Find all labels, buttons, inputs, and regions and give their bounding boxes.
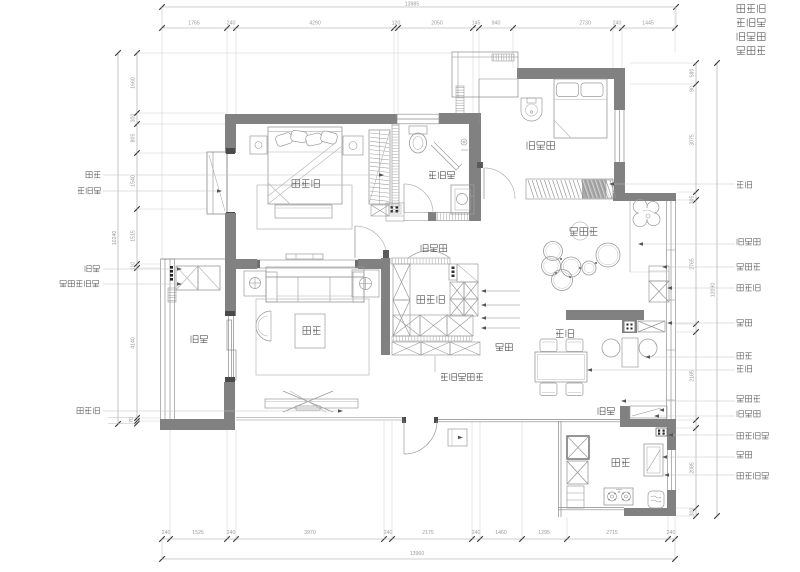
svg-text:13960: 13960 [410, 551, 425, 557]
svg-text:145: 145 [472, 21, 481, 27]
svg-text:1525: 1525 [192, 530, 204, 536]
svg-text:1515: 1515 [131, 230, 137, 242]
svg-text:300: 300 [690, 508, 696, 517]
svg-text:580: 580 [690, 69, 696, 78]
svg-text:1295: 1295 [538, 530, 550, 536]
svg-text:2715: 2715 [606, 530, 618, 536]
svg-text:1445: 1445 [642, 21, 654, 27]
svg-text:1765: 1765 [188, 21, 200, 27]
svg-text:10240: 10240 [112, 231, 118, 246]
svg-text:300: 300 [131, 114, 137, 123]
svg-text:70: 70 [129, 417, 135, 423]
svg-text:2175: 2175 [422, 530, 434, 536]
svg-text:3075: 3075 [690, 134, 696, 146]
svg-text:2085: 2085 [690, 462, 696, 474]
svg-text:4140: 4140 [131, 337, 137, 349]
svg-text:805: 805 [131, 134, 137, 143]
svg-text:13985: 13985 [405, 2, 420, 8]
svg-text:240: 240 [227, 530, 236, 536]
svg-text:3970: 3970 [304, 530, 316, 536]
svg-text:2050: 2050 [431, 21, 443, 27]
svg-text:2730: 2730 [579, 21, 591, 27]
svg-text:240: 240 [162, 530, 171, 536]
svg-text:1660: 1660 [131, 77, 137, 89]
svg-text:120: 120 [392, 21, 401, 27]
svg-text:240: 240 [384, 530, 393, 536]
svg-text:1460: 1460 [495, 530, 507, 536]
svg-text:1540: 1540 [131, 175, 137, 187]
svg-text:2765: 2765 [690, 258, 696, 270]
svg-text:240: 240 [227, 21, 236, 27]
svg-text:940: 940 [492, 21, 501, 27]
svg-text:4290: 4290 [309, 21, 321, 27]
svg-text:12090: 12090 [711, 283, 717, 298]
svg-text:240: 240 [613, 21, 622, 27]
svg-text:240: 240 [472, 530, 481, 536]
svg-text:2185: 2185 [690, 370, 696, 382]
svg-text:90: 90 [690, 86, 696, 92]
